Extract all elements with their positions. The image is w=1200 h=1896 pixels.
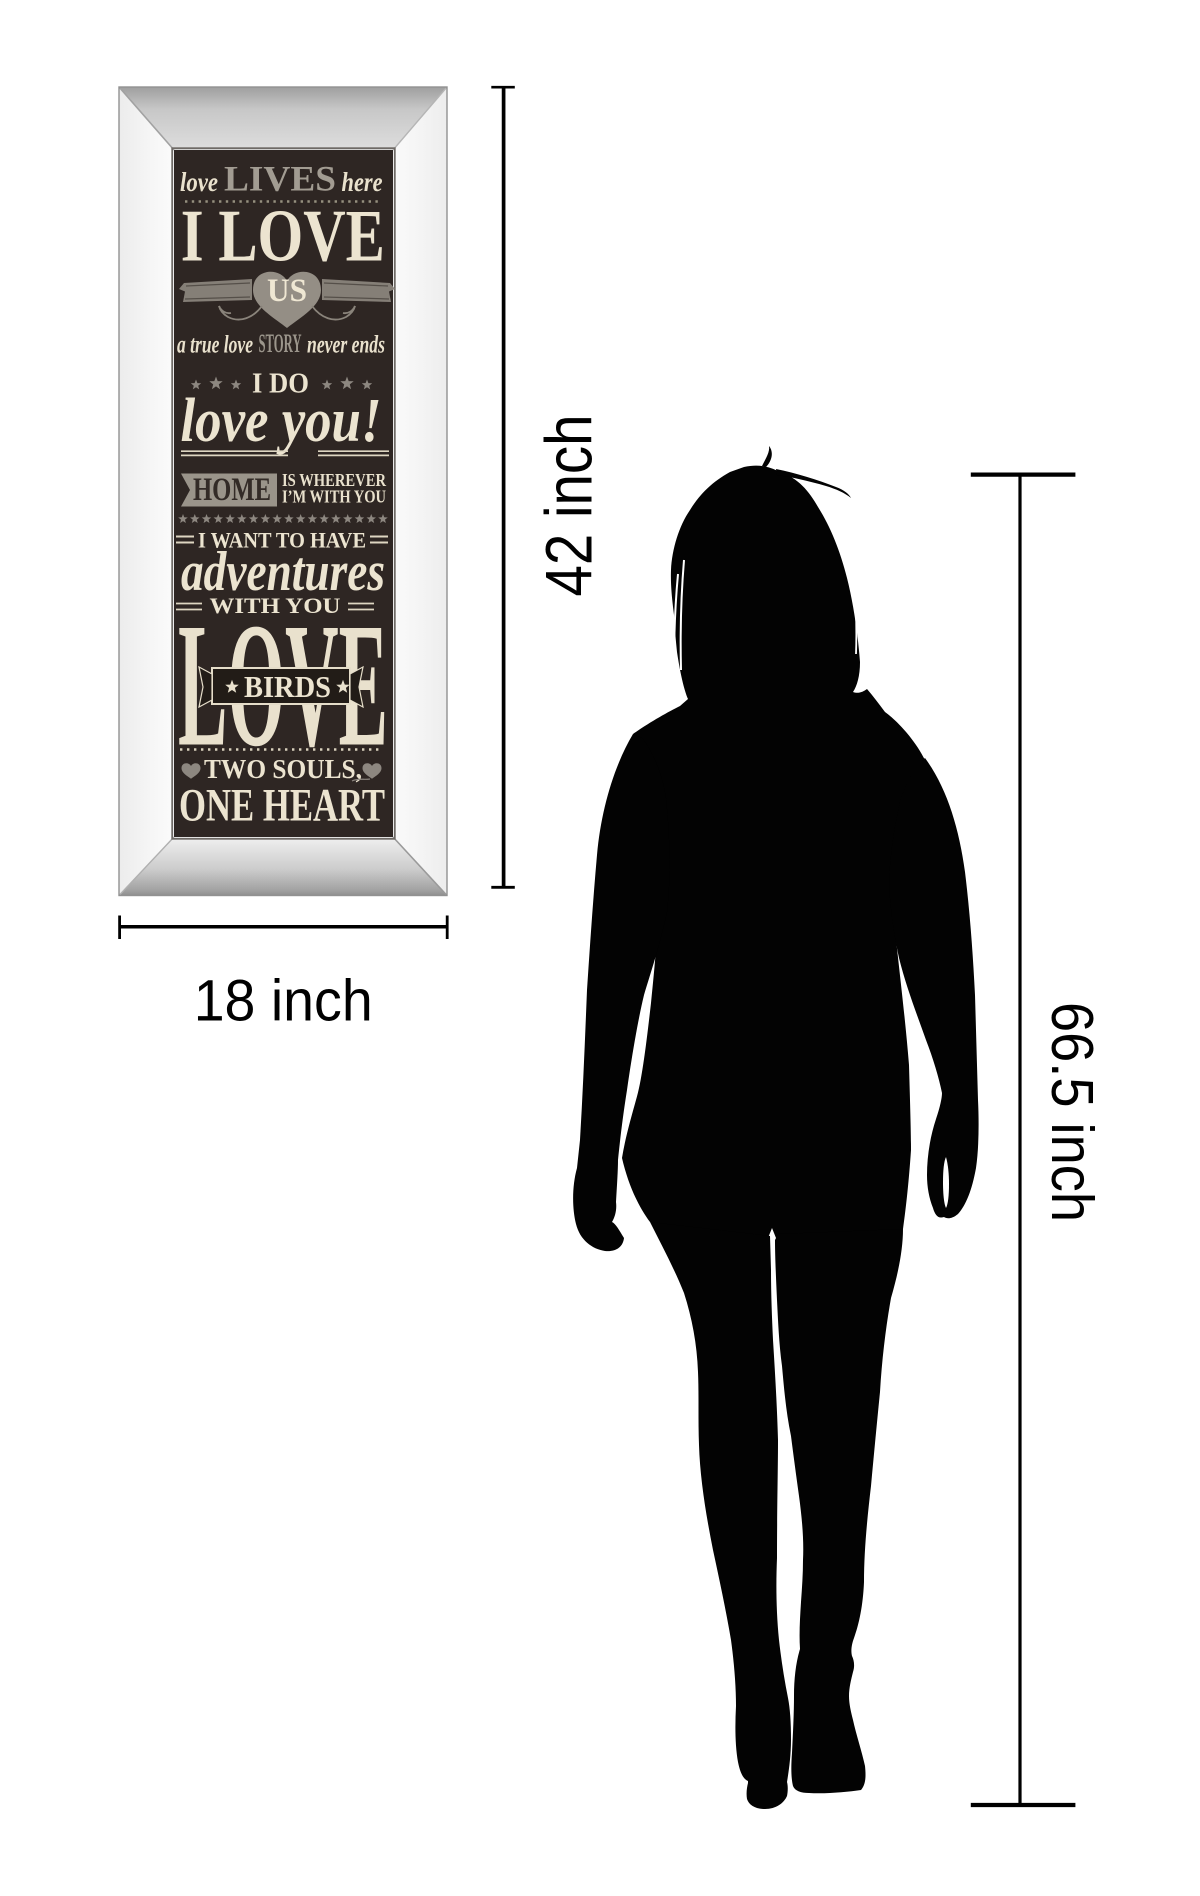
svg-text:love: love [180,167,218,197]
svg-text:STORY: STORY [259,329,302,358]
svg-text:LIVES: LIVES [224,159,336,199]
svg-text:never ends: never ends [307,332,385,359]
svg-text:here: here [342,167,383,197]
svg-text:love you!: love you! [181,387,382,455]
svg-text:I LOVE: I LOVE [181,196,385,278]
svg-text:42 inch: 42 inch [531,415,605,597]
svg-text:66.5 inch: 66.5 inch [1039,1002,1105,1222]
svg-text:I’M WITH YOU: I’M WITH YOU [282,487,386,507]
svg-text:BIRDS: BIRDS [244,669,331,704]
svg-text:a true love: a true love [177,332,253,359]
svg-text:18 inch: 18 inch [194,969,373,1034]
svg-text:US: US [267,273,307,309]
svg-text:HOME: HOME [193,472,271,508]
svg-text:ONE HEART: ONE HEART [179,780,385,832]
